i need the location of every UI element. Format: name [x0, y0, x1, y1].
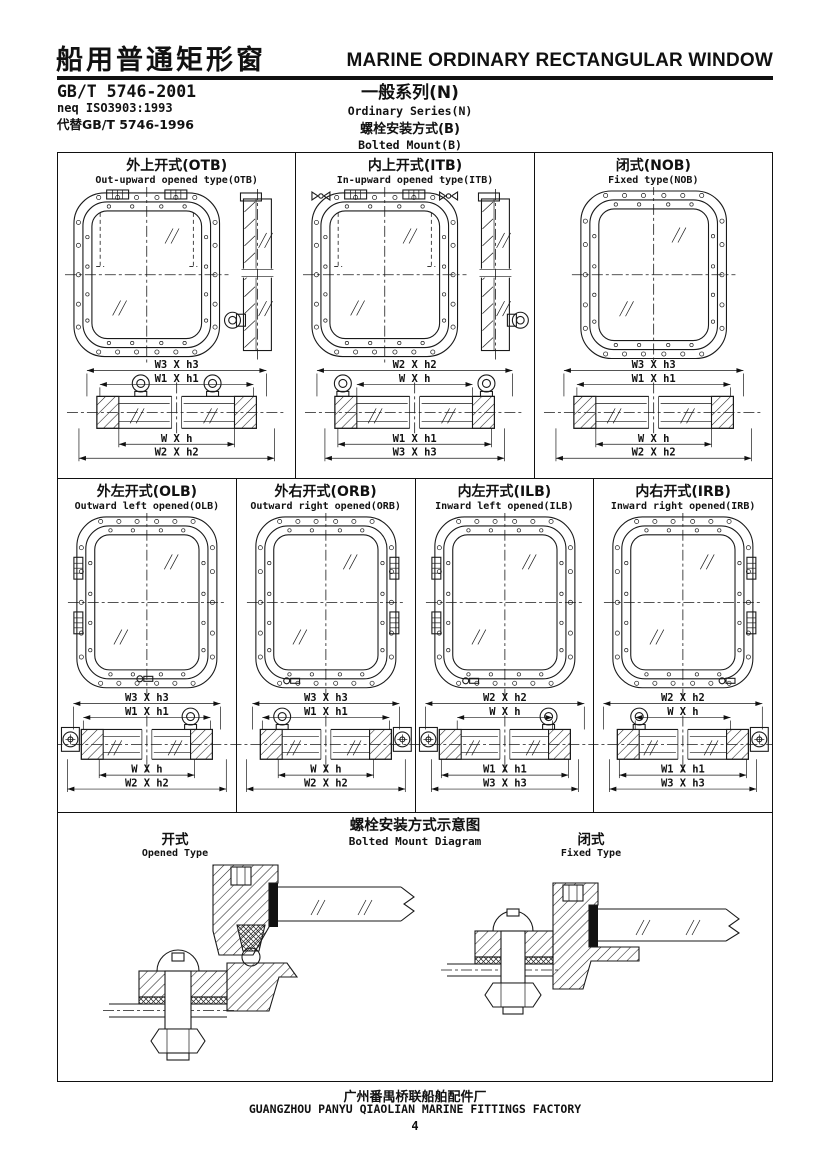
- series-block: 一般系列(N) Ordinary Series(N) 螺栓安装方式(B) Bol…: [260, 83, 560, 152]
- page-title-chinese: 船用普通矩形窗: [56, 38, 266, 77]
- table-row-2: 外左开式(OLB) Outward left opened(OLB) W3 X …: [58, 479, 772, 813]
- window-diagram-nob: W3 X h3W1 X h1W X hW2 X h2: [535, 187, 772, 478]
- cell-title-cn: 内上开式(ITB): [296, 158, 533, 175]
- series-title-cn: 一般系列(N): [260, 83, 560, 104]
- cell-title-en: Inward right opened(IRB): [594, 501, 772, 513]
- window-diagram-otb: W3 X h3W1 X h1W X hW2 X h2: [58, 187, 295, 478]
- svg-text:W X h: W X h: [399, 373, 431, 385]
- standard-replaces: 代替GB/T 5746-1996: [57, 114, 194, 133]
- window-diagram-irb: W2 X h2W X hW1 X h1W3 X h3: [594, 513, 772, 811]
- cell-title-cn: 内左开式(ILB): [416, 484, 594, 501]
- window-diagram-olb: W3 X h3W1 X h1W X hW2 X h2: [58, 513, 236, 811]
- window-type-cell-itb: 内上开式(ITB) In-upward opened type(ITB) W2 …: [296, 153, 534, 478]
- window-type-cell-nob: 闭式(NOB) Fixed type(NOB) W3 X h3W1 X h1W …: [535, 153, 772, 478]
- cell-title-cn: 外左开式(OLB): [58, 484, 236, 501]
- mount-type-cn: 螺栓安装方式(B): [260, 121, 560, 138]
- page-title-english: MARINE ORDINARY RECTANGULAR WINDOW: [346, 50, 773, 72]
- cell-title-en: Out-upward opened type(OTB): [58, 175, 295, 187]
- window-type-cell-orb: 外右开式(ORB) Outward right opened(ORB) W3 X…: [237, 479, 416, 812]
- svg-text:W3 X h3: W3 X h3: [631, 359, 675, 371]
- window-diagram-orb: W3 X h3W1 X h1W X hW2 X h2: [237, 513, 415, 811]
- cell-title-cn: 内右开式(IRB): [594, 484, 772, 501]
- svg-text:W1 X h1: W1 X h1: [393, 433, 437, 445]
- page-number: 4: [0, 1119, 830, 1133]
- svg-text:W1 X h1: W1 X h1: [125, 706, 169, 718]
- catalog-page: 船用普通矩形窗 MARINE ORDINARY RECTANGULAR WIND…: [0, 0, 830, 1175]
- header-rule: [57, 76, 773, 80]
- window-types-table: 外上开式(OTB) Out-upward opened type(OTB) W3…: [57, 152, 773, 1082]
- cell-title-en: Inward left opened(ILB): [416, 501, 594, 513]
- table-row-1: 外上开式(OTB) Out-upward opened type(OTB) W3…: [58, 153, 772, 479]
- opened-type-label: 开式 Opened Type: [100, 832, 250, 860]
- cell-title-en: Outward left opened(OLB): [58, 501, 236, 513]
- bolted-mount-section: 螺栓安装方式示意图 Bolted Mount Diagram 开式 Opened…: [58, 813, 772, 1079]
- svg-text:W1 X h1: W1 X h1: [155, 373, 199, 385]
- cell-title-en: In-upward opened type(ITB): [296, 175, 533, 187]
- svg-text:W2 X h2: W2 X h2: [393, 359, 437, 371]
- svg-text:W2 X h2: W2 X h2: [304, 778, 348, 790]
- cell-title-cn: 闭式(NOB): [535, 158, 772, 175]
- svg-text:W X h: W X h: [489, 706, 520, 718]
- window-diagram-itb: W2 X h2W X hW1 X h1W3 X h3: [296, 187, 533, 478]
- mount-cross-sections: [58, 857, 774, 1083]
- svg-text:W2 X h2: W2 X h2: [125, 778, 169, 790]
- cell-title-cn: 外右开式(ORB): [237, 484, 415, 501]
- mount-type-en: Bolted Mount(B): [260, 138, 560, 152]
- svg-text:W X h: W X h: [638, 433, 670, 445]
- series-title-en: Ordinary Series(N): [260, 104, 560, 119]
- standard-number: GB/T 5746-2001: [57, 82, 196, 101]
- svg-text:W3 X h3: W3 X h3: [393, 447, 437, 459]
- standard-equivalent: neq ISO3903:1993: [57, 101, 173, 115]
- svg-text:W3 X h3: W3 X h3: [155, 359, 199, 371]
- svg-text:W1 X h1: W1 X h1: [304, 706, 348, 718]
- svg-text:W2 X h2: W2 X h2: [155, 447, 199, 459]
- fixed-type-label-cn: 闭式: [516, 832, 666, 848]
- window-type-cell-ilb: 内左开式(ILB) Inward left opened(ILB) W2 X h…: [416, 479, 595, 812]
- svg-text:W3 X h3: W3 X h3: [661, 778, 705, 790]
- window-type-cell-irb: 内右开式(IRB) Inward right opened(IRB) W2 X …: [594, 479, 772, 812]
- svg-text:W3 X h3: W3 X h3: [125, 692, 169, 704]
- svg-text:W X h: W X h: [310, 764, 341, 776]
- window-diagram-ilb: W2 X h2W X hW1 X h1W3 X h3: [416, 513, 594, 811]
- window-type-cell-olb: 外左开式(OLB) Outward left opened(OLB) W3 X …: [58, 479, 237, 812]
- svg-text:W2 X h2: W2 X h2: [482, 692, 526, 704]
- svg-text:W3 X h3: W3 X h3: [482, 778, 526, 790]
- svg-text:W2 X h2: W2 X h2: [661, 692, 705, 704]
- svg-text:W1 X h1: W1 X h1: [631, 373, 675, 385]
- cell-title-en: Outward right opened(ORB): [237, 501, 415, 513]
- svg-text:W1 X h1: W1 X h1: [482, 764, 526, 776]
- factory-name-en: GUANGZHOU PANYU QIAOLIAN MARINE FITTINGS…: [0, 1102, 830, 1116]
- svg-text:W X h: W X h: [131, 764, 162, 776]
- svg-text:W X h: W X h: [667, 706, 698, 718]
- cell-title-cn: 外上开式(OTB): [58, 158, 295, 175]
- svg-text:W2 X h2: W2 X h2: [631, 447, 675, 459]
- svg-text:W1 X h1: W1 X h1: [661, 764, 705, 776]
- cell-title-en: Fixed type(NOB): [535, 175, 772, 187]
- fixed-type-label: 闭式 Fixed Type: [516, 832, 666, 860]
- window-type-cell-otb: 外上开式(OTB) Out-upward opened type(OTB) W3…: [58, 153, 296, 478]
- opened-type-label-cn: 开式: [100, 832, 250, 848]
- svg-text:W3 X h3: W3 X h3: [304, 692, 348, 704]
- svg-text:W X h: W X h: [161, 433, 193, 445]
